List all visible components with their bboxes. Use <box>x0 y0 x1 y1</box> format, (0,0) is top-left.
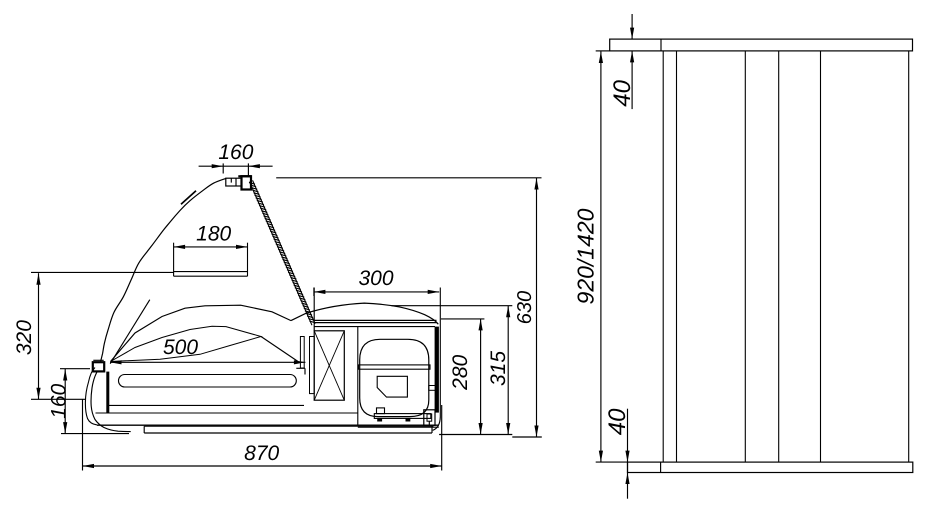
svg-text:280: 280 <box>449 354 472 390</box>
svg-text:500: 500 <box>163 336 198 359</box>
svg-text:920/1420: 920/1420 <box>573 208 599 304</box>
svg-text:160: 160 <box>48 383 71 418</box>
svg-text:320: 320 <box>13 320 36 355</box>
svg-text:315: 315 <box>487 351 510 386</box>
svg-text:180: 180 <box>196 222 231 245</box>
svg-text:630: 630 <box>514 291 536 324</box>
svg-text:300: 300 <box>358 267 393 290</box>
svg-text:160: 160 <box>218 141 253 164</box>
svg-text:870: 870 <box>244 442 279 465</box>
